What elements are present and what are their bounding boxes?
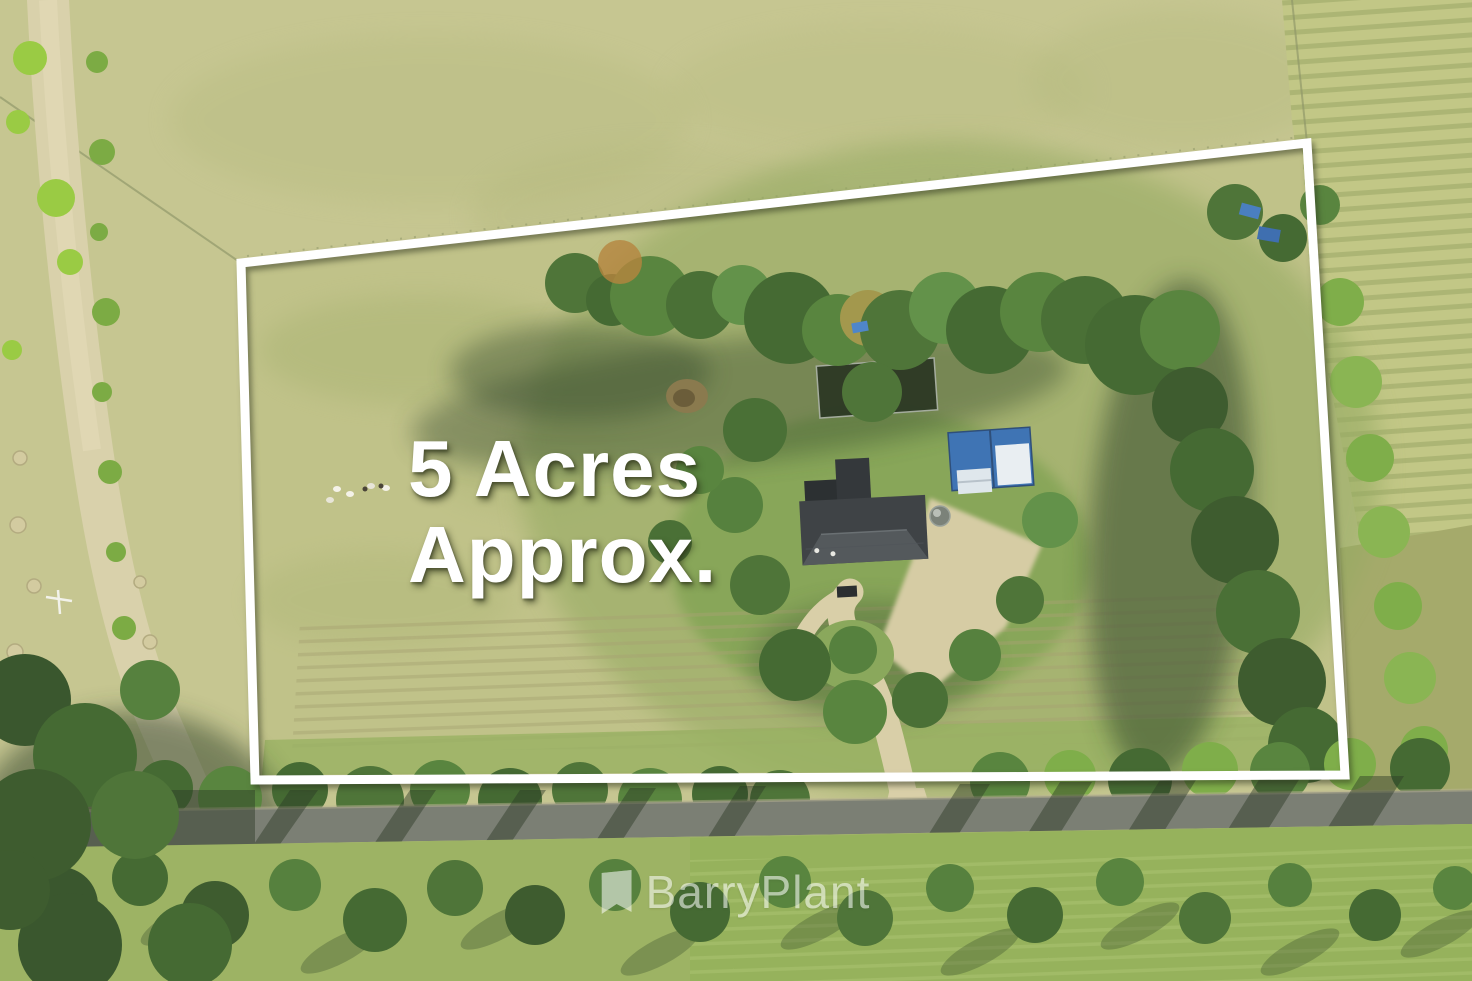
area-label: 5 Acres Approx. bbox=[408, 426, 717, 598]
watermark-text: BarryPlant bbox=[646, 868, 871, 916]
parked-car bbox=[837, 586, 858, 598]
water-tank bbox=[930, 506, 950, 526]
pennant-flag-icon bbox=[602, 870, 632, 914]
dirt-mound bbox=[666, 379, 708, 413]
watermark: BarryPlant bbox=[602, 868, 871, 916]
area-label-line1: 5 Acres bbox=[408, 426, 717, 512]
aerial-property-photo: 5 Acres Approx. BarryPlant bbox=[0, 0, 1472, 981]
area-label-line2: Approx. bbox=[408, 512, 717, 598]
shed-roof bbox=[948, 427, 1034, 495]
aerial-scene bbox=[0, 0, 1472, 981]
